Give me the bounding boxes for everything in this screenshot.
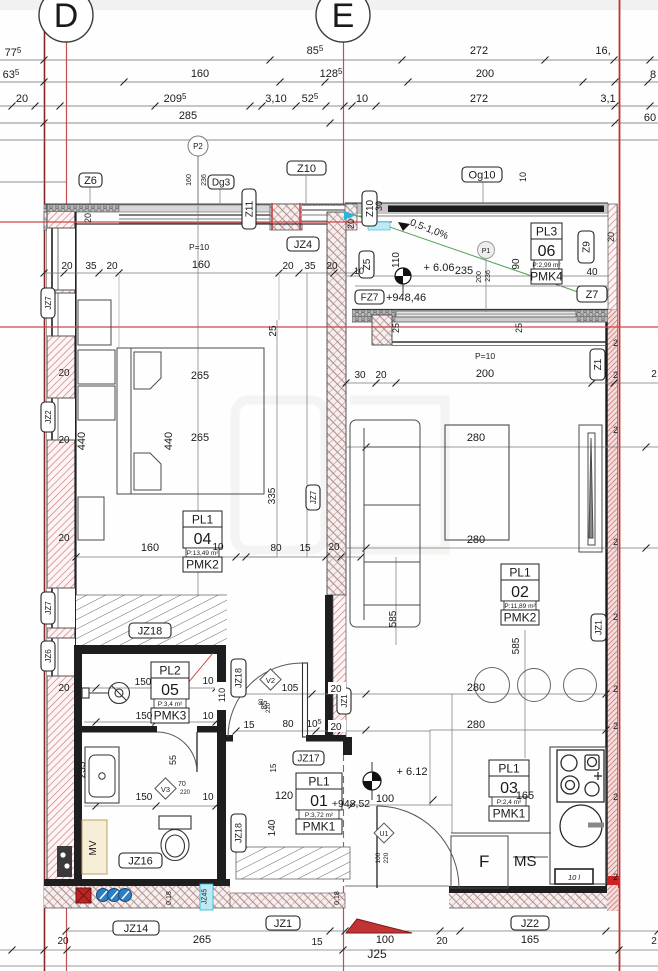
svg-text:20: 20 bbox=[61, 261, 73, 272]
svg-text:235: 235 bbox=[77, 761, 88, 778]
svg-text:160: 160 bbox=[192, 259, 210, 271]
svg-text:20: 20 bbox=[375, 370, 387, 381]
svg-text:200: 200 bbox=[476, 368, 494, 380]
svg-text:150: 150 bbox=[135, 677, 152, 688]
svg-text:20: 20 bbox=[57, 936, 69, 947]
svg-text:P:2,99 m²: P:2,99 m² bbox=[532, 262, 561, 269]
svg-text:Z9: Z9 bbox=[582, 241, 593, 253]
svg-text:PL3: PL3 bbox=[536, 225, 558, 239]
svg-text:P=10: P=10 bbox=[189, 242, 209, 252]
svg-text:MV: MV bbox=[88, 840, 99, 855]
svg-text:220: 220 bbox=[383, 852, 390, 863]
svg-text:2: 2 bbox=[613, 612, 618, 622]
svg-text:20: 20 bbox=[346, 219, 356, 229]
svg-text:10: 10 bbox=[356, 93, 368, 105]
svg-text:200: 200 bbox=[476, 271, 483, 283]
svg-text:8: 8 bbox=[650, 69, 656, 81]
svg-text:265: 265 bbox=[193, 934, 211, 946]
svg-text:Z6: Z6 bbox=[84, 175, 97, 187]
svg-text:E: E bbox=[332, 0, 355, 35]
svg-text:90: 90 bbox=[511, 258, 522, 270]
svg-text:PMK4: PMK4 bbox=[530, 270, 563, 284]
svg-text:+ 6.06: + 6.06 bbox=[424, 262, 455, 274]
svg-text:JZ6: JZ6 bbox=[44, 649, 53, 663]
svg-text:3,10: 3,10 bbox=[265, 93, 286, 105]
svg-text:265: 265 bbox=[191, 432, 209, 444]
svg-text:20: 20 bbox=[106, 261, 118, 272]
svg-text:2: 2 bbox=[613, 684, 618, 694]
svg-text:JZ2: JZ2 bbox=[44, 410, 53, 424]
svg-text:JZ16: JZ16 bbox=[128, 855, 152, 867]
svg-text:10: 10 bbox=[202, 711, 214, 722]
svg-text:JZ18: JZ18 bbox=[234, 823, 244, 843]
svg-text:2: 2 bbox=[651, 369, 657, 380]
svg-text:JZ4: JZ4 bbox=[294, 239, 312, 251]
svg-text:272: 272 bbox=[470, 45, 488, 57]
svg-text:2: 2 bbox=[613, 721, 618, 731]
svg-text:JZ17: JZ17 bbox=[297, 754, 320, 765]
svg-text:JZ7: JZ7 bbox=[44, 601, 53, 615]
svg-text:20: 20 bbox=[58, 435, 70, 446]
svg-text:280: 280 bbox=[467, 432, 485, 444]
svg-text:10: 10 bbox=[212, 542, 224, 553]
svg-text:110: 110 bbox=[391, 252, 402, 268]
svg-text:0,18: 0,18 bbox=[166, 891, 173, 905]
svg-text:160: 160 bbox=[141, 542, 159, 554]
svg-text:2: 2 bbox=[613, 370, 618, 380]
svg-text:JZ1: JZ1 bbox=[274, 918, 292, 930]
svg-text:20: 20 bbox=[328, 542, 340, 553]
svg-text:80: 80 bbox=[282, 719, 294, 730]
svg-text:Z11: Z11 bbox=[245, 200, 256, 217]
svg-text:30: 30 bbox=[374, 201, 384, 211]
svg-text:585: 585 bbox=[511, 637, 522, 654]
svg-text:PMK2: PMK2 bbox=[186, 558, 219, 572]
svg-text:JZ7: JZ7 bbox=[44, 296, 53, 310]
svg-text:272: 272 bbox=[470, 93, 488, 105]
svg-text:05: 05 bbox=[161, 682, 179, 699]
svg-text:10: 10 bbox=[354, 266, 364, 276]
svg-text:P=10: P=10 bbox=[475, 351, 495, 361]
svg-text:PL1: PL1 bbox=[192, 513, 214, 527]
svg-text:40: 40 bbox=[586, 267, 598, 278]
svg-text:PL1: PL1 bbox=[308, 775, 330, 789]
svg-text:0,18: 0,18 bbox=[334, 891, 341, 905]
svg-text:20: 20 bbox=[330, 684, 342, 695]
svg-text:2: 2 bbox=[613, 338, 618, 348]
svg-text:20: 20 bbox=[58, 533, 70, 544]
svg-text:PL2: PL2 bbox=[159, 664, 181, 678]
svg-text:160: 160 bbox=[186, 174, 193, 186]
svg-text:+ 6.12: + 6.12 bbox=[397, 766, 428, 778]
svg-text:2: 2 bbox=[651, 936, 657, 947]
svg-text:100: 100 bbox=[376, 934, 394, 946]
svg-text:15: 15 bbox=[269, 763, 278, 772]
svg-text:20: 20 bbox=[326, 261, 338, 272]
svg-text:Z1: Z1 bbox=[593, 358, 604, 370]
svg-text:265: 265 bbox=[191, 370, 209, 382]
svg-text:Dg3: Dg3 bbox=[212, 178, 231, 189]
svg-text:P1: P1 bbox=[482, 248, 491, 255]
svg-text:35: 35 bbox=[304, 261, 316, 272]
svg-text:285: 285 bbox=[179, 110, 197, 122]
svg-text:20: 20 bbox=[58, 683, 70, 694]
svg-text:70: 70 bbox=[178, 781, 186, 788]
svg-text:V3: V3 bbox=[161, 785, 170, 794]
svg-text:J25: J25 bbox=[367, 947, 387, 961]
svg-text:Z7: Z7 bbox=[586, 289, 599, 301]
svg-text:PMK2: PMK2 bbox=[504, 611, 537, 625]
svg-text:15: 15 bbox=[299, 543, 311, 554]
svg-text:JZ7: JZ7 bbox=[309, 490, 318, 504]
svg-text:236: 236 bbox=[485, 270, 492, 282]
svg-text:30: 30 bbox=[354, 370, 366, 381]
svg-text:335: 335 bbox=[267, 487, 278, 504]
svg-text:80: 80 bbox=[270, 543, 282, 554]
svg-text:150: 150 bbox=[136, 711, 153, 722]
svg-text:20: 20 bbox=[436, 936, 448, 947]
svg-text:105: 105 bbox=[282, 683, 299, 694]
svg-text:100: 100 bbox=[376, 793, 394, 805]
svg-text:PMK3: PMK3 bbox=[154, 709, 187, 723]
svg-text:JZ2: JZ2 bbox=[521, 918, 539, 930]
svg-text:160: 160 bbox=[191, 68, 209, 80]
svg-text:P:3,4 m²: P:3,4 m² bbox=[158, 701, 183, 708]
svg-text:3,1: 3,1 bbox=[600, 93, 615, 105]
svg-text:280: 280 bbox=[467, 682, 485, 694]
svg-text:P:3,72 m²: P:3,72 m² bbox=[305, 812, 334, 819]
svg-text:JZ18: JZ18 bbox=[138, 625, 162, 637]
svg-text:585: 585 bbox=[388, 610, 399, 627]
svg-text:+948,46: +948,46 bbox=[386, 292, 426, 304]
svg-text:165: 165 bbox=[516, 790, 534, 802]
svg-text:235: 235 bbox=[455, 265, 473, 277]
svg-text:80: 80 bbox=[259, 698, 265, 705]
svg-text:U1: U1 bbox=[380, 831, 389, 838]
svg-text:10: 10 bbox=[202, 676, 214, 687]
svg-text:55: 55 bbox=[168, 755, 178, 765]
svg-text:FZ7: FZ7 bbox=[361, 293, 379, 304]
svg-text:236: 236 bbox=[201, 174, 208, 186]
svg-text:220: 220 bbox=[180, 790, 191, 796]
svg-text:20: 20 bbox=[83, 213, 93, 223]
svg-text:20: 20 bbox=[16, 93, 28, 105]
svg-text:PMK1: PMK1 bbox=[493, 807, 526, 821]
svg-text:20: 20 bbox=[282, 261, 294, 272]
svg-text:120: 120 bbox=[275, 790, 293, 802]
svg-text:PL1: PL1 bbox=[509, 566, 531, 580]
svg-text:JZ1: JZ1 bbox=[340, 694, 349, 708]
svg-text:P2: P2 bbox=[193, 142, 203, 151]
svg-text:200: 200 bbox=[476, 68, 494, 80]
svg-text:10 l: 10 l bbox=[568, 873, 580, 882]
svg-text:JZ18: JZ18 bbox=[234, 668, 244, 688]
svg-text:2: 2 bbox=[613, 872, 618, 882]
svg-text:D: D bbox=[54, 0, 79, 35]
svg-text:280: 280 bbox=[467, 719, 485, 731]
svg-text:25: 25 bbox=[514, 323, 524, 333]
svg-text:V2: V2 bbox=[266, 676, 275, 685]
svg-text:35: 35 bbox=[85, 261, 97, 272]
svg-text:15: 15 bbox=[243, 720, 255, 731]
svg-text:JZ1: JZ1 bbox=[594, 620, 604, 635]
svg-text:P:11,89 m²: P:11,89 m² bbox=[504, 603, 536, 610]
svg-text:2: 2 bbox=[613, 425, 618, 435]
svg-text:140: 140 bbox=[267, 819, 278, 836]
svg-text:15: 15 bbox=[311, 937, 323, 948]
svg-text:165: 165 bbox=[521, 934, 539, 946]
svg-text:JZ14: JZ14 bbox=[124, 923, 148, 935]
svg-text:150: 150 bbox=[136, 792, 153, 803]
svg-text:PL1: PL1 bbox=[498, 762, 520, 776]
svg-text:04: 04 bbox=[194, 531, 212, 548]
svg-text:280: 280 bbox=[467, 534, 485, 546]
svg-text:440: 440 bbox=[76, 432, 88, 450]
svg-text:MS: MS bbox=[514, 853, 537, 870]
svg-text:10: 10 bbox=[518, 172, 528, 182]
svg-text:Og10: Og10 bbox=[469, 169, 496, 181]
svg-text:F: F bbox=[479, 852, 489, 871]
svg-text:Z10: Z10 bbox=[297, 163, 316, 175]
svg-text:2: 2 bbox=[613, 792, 618, 802]
svg-text:+948,52: +948,52 bbox=[332, 798, 370, 810]
svg-text:20: 20 bbox=[58, 368, 70, 379]
svg-text:2: 2 bbox=[613, 537, 618, 547]
svg-text:440: 440 bbox=[163, 432, 175, 450]
svg-text:20: 20 bbox=[330, 722, 342, 733]
svg-text:JZ45: JZ45 bbox=[202, 889, 209, 905]
svg-text:20: 20 bbox=[606, 232, 616, 242]
svg-text:01: 01 bbox=[310, 793, 328, 810]
svg-text:60: 60 bbox=[644, 112, 656, 124]
svg-text:PMK1: PMK1 bbox=[303, 820, 336, 834]
svg-text:02: 02 bbox=[511, 584, 529, 601]
svg-text:110: 110 bbox=[217, 688, 227, 702]
svg-text:100: 100 bbox=[375, 852, 382, 863]
svg-text:25: 25 bbox=[268, 325, 279, 337]
svg-text:16,: 16, bbox=[595, 45, 610, 57]
svg-text:10: 10 bbox=[202, 792, 214, 803]
svg-text:220: 220 bbox=[266, 702, 272, 713]
svg-text:25: 25 bbox=[391, 323, 401, 333]
svg-text:06: 06 bbox=[538, 243, 556, 260]
